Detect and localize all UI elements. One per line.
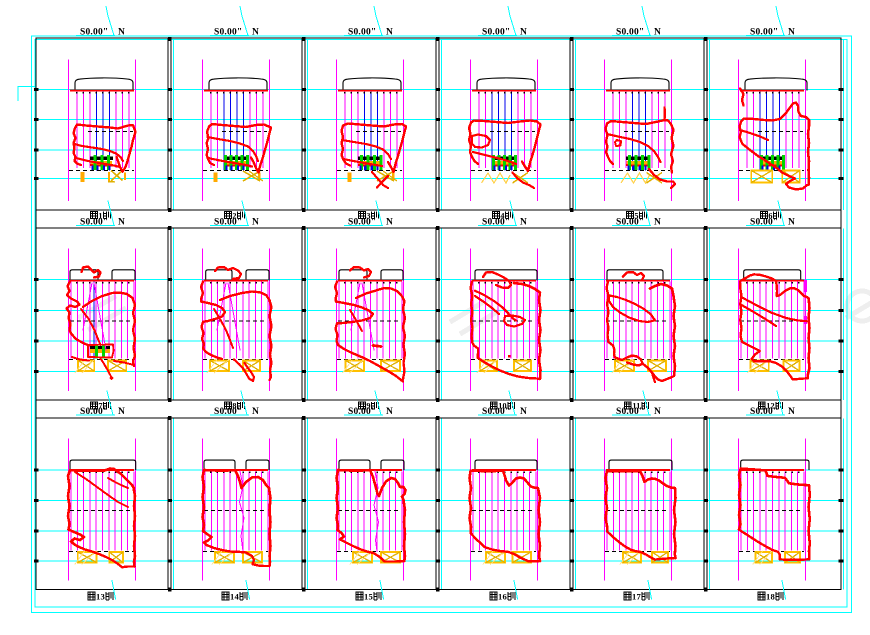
svg-text:15: 15 — [364, 591, 373, 601]
svg-text:N: N — [654, 27, 661, 37]
svg-text:N: N — [788, 407, 795, 417]
svg-text:N: N — [654, 407, 661, 417]
svg-text:N: N — [788, 217, 795, 227]
svg-text:13: 13 — [96, 591, 105, 601]
svg-text:N: N — [520, 407, 527, 417]
svg-text:14: 14 — [230, 591, 239, 601]
svg-text:N: N — [520, 27, 527, 37]
svg-text:N: N — [118, 407, 125, 417]
svg-text:16: 16 — [498, 591, 507, 601]
svg-text:N: N — [252, 407, 259, 417]
svg-text:N: N — [386, 407, 393, 417]
svg-text:N: N — [386, 217, 393, 227]
svg-text:N: N — [118, 217, 125, 227]
svg-text:N: N — [520, 217, 527, 227]
svg-text:N: N — [118, 27, 125, 37]
svg-text:N: N — [654, 217, 661, 227]
svg-text:17: 17 — [632, 591, 641, 601]
svg-text:N: N — [788, 27, 795, 37]
svg-text:N: N — [252, 217, 259, 227]
svg-text:18: 18 — [766, 591, 775, 601]
svg-text:N: N — [252, 27, 259, 37]
svg-text:N: N — [386, 27, 393, 37]
